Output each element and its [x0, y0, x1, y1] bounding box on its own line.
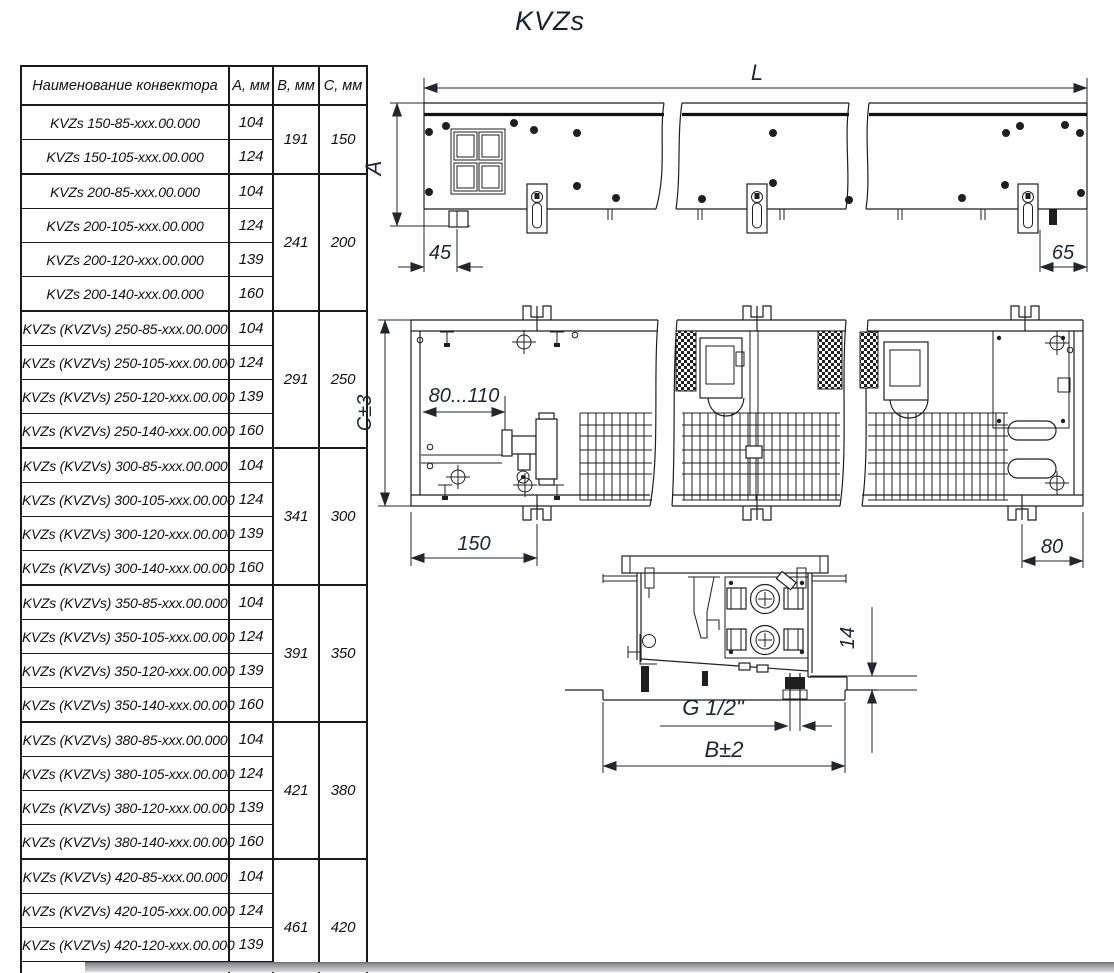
tube-end-lower	[1008, 459, 1056, 478]
fan-grille-3	[860, 332, 878, 388]
dim-65: 65	[1052, 242, 1075, 264]
fan-motor-2	[884, 342, 928, 418]
technical-drawing: L A	[0, 0, 1114, 973]
top-view: L A	[361, 60, 1087, 272]
drain-syphon	[688, 577, 720, 638]
dim-150: 150	[457, 533, 490, 555]
window-edge-bar	[85, 962, 1114, 972]
heat-exchanger	[580, 413, 1056, 500]
unit-ledge	[808, 677, 847, 690]
dim-80: 80	[1041, 536, 1063, 558]
dark-foot	[1049, 209, 1057, 225]
air-grille	[451, 129, 505, 194]
dim-B2: B±2	[705, 737, 744, 762]
dim-C3: С±3	[354, 395, 376, 432]
dim-A: A	[361, 161, 386, 178]
dim-L: L	[751, 60, 763, 85]
fan-motor-1	[700, 338, 744, 416]
fitting-lower	[727, 626, 803, 655]
fan-grille-1	[676, 331, 696, 391]
pipe-connection	[783, 673, 807, 700]
mid-stub	[702, 671, 708, 686]
feet-ticks	[608, 209, 985, 220]
fitting-upper	[727, 572, 803, 614]
dim-14: 14	[837, 627, 859, 649]
valve-assembly	[502, 396, 557, 485]
datasheet-page: KVZs Наименование конвектораА, ммВ, ммС,…	[0, 0, 1114, 973]
dim-G12: G 1/2"	[682, 695, 745, 720]
side-view: 14 G 1/2" B±2	[565, 556, 917, 773]
fan-grille-2	[818, 331, 842, 389]
divider-clip	[746, 446, 762, 458]
dim-80-110: 80...110	[429, 385, 500, 407]
plan-view: С±3	[354, 306, 1083, 568]
dim-45: 45	[429, 242, 452, 264]
left-hanger	[628, 634, 657, 692]
duct-stub	[449, 211, 468, 227]
tube-end-upper	[1008, 421, 1056, 440]
